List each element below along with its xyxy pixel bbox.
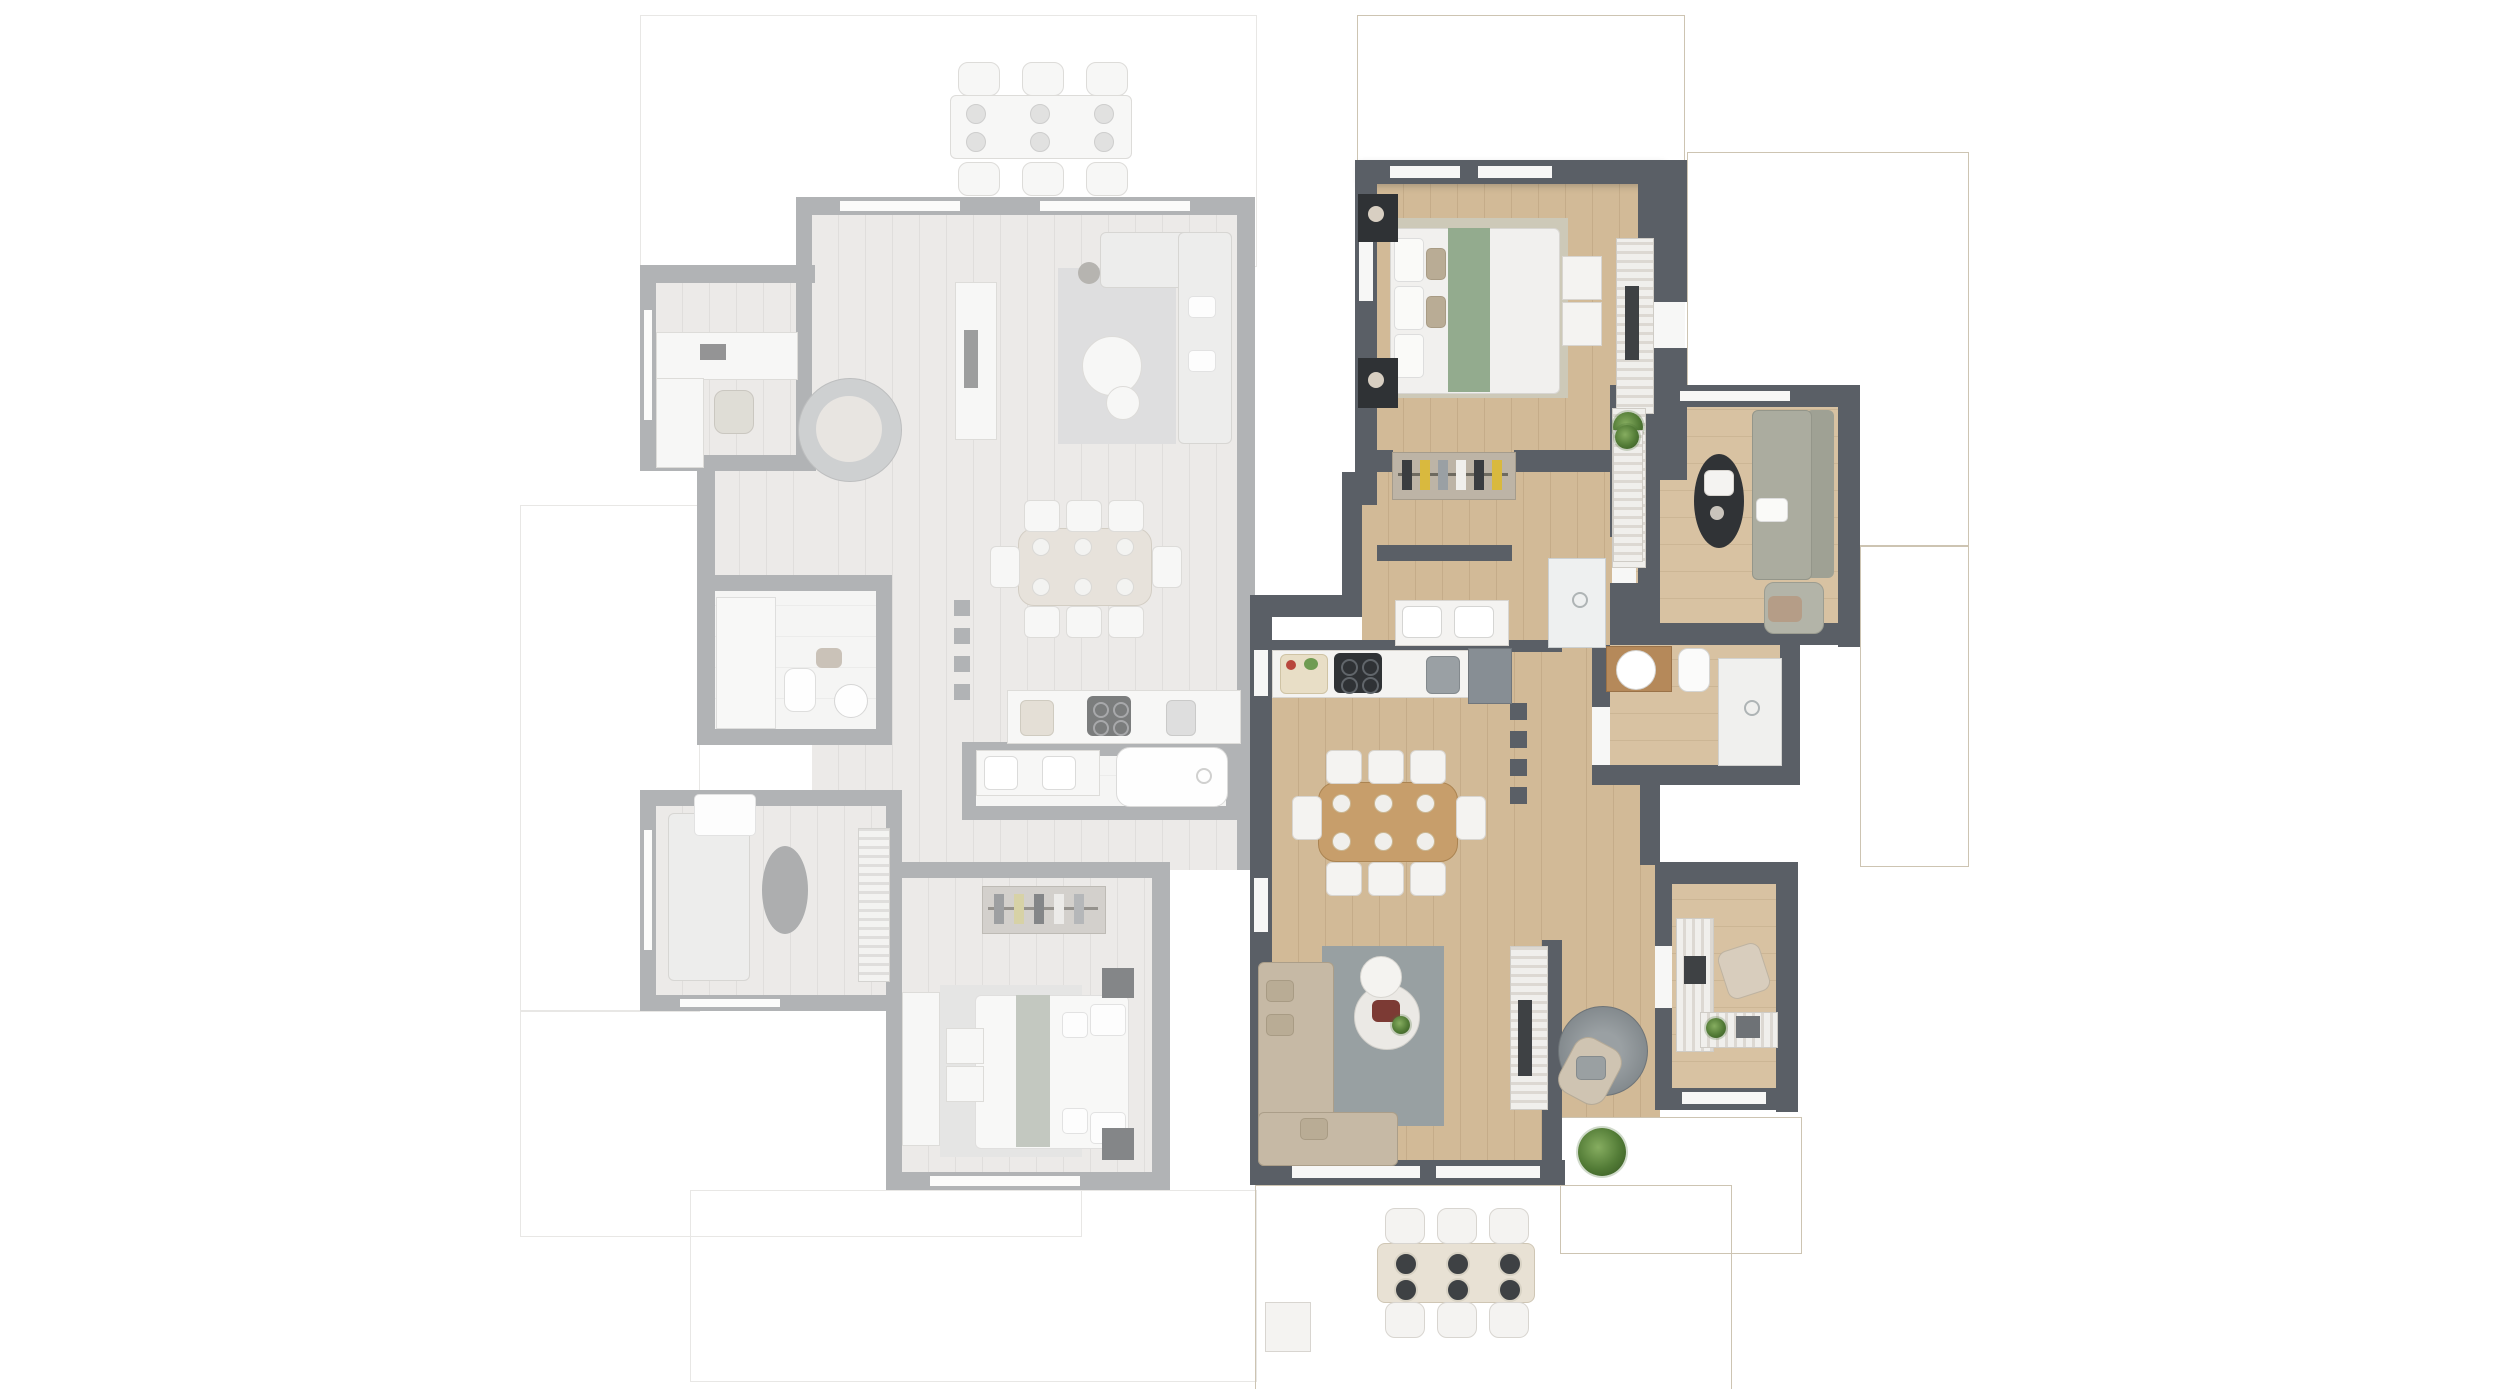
wall	[1640, 765, 1660, 865]
sliding-door	[1292, 1166, 1420, 1178]
outdoor-chair	[1437, 1208, 1477, 1244]
plate	[1332, 832, 1351, 851]
bed-runner	[1448, 228, 1490, 392]
outdoor-chair	[1489, 1208, 1529, 1244]
wall	[1342, 472, 1362, 615]
wall	[1838, 385, 1860, 647]
outdoor-chair	[1489, 1302, 1529, 1338]
outdoor-storage-box	[1265, 1302, 1311, 1352]
plate	[1374, 832, 1393, 851]
sofa-chaise	[1258, 1112, 1398, 1166]
window	[1254, 650, 1268, 696]
plate	[1416, 794, 1435, 813]
outdoor-chair	[1437, 1302, 1477, 1338]
floor-plan-canvas	[0, 0, 2500, 1389]
tv	[1625, 286, 1639, 360]
greens	[1304, 658, 1318, 670]
storage-box	[1736, 1016, 1760, 1038]
table-lamp	[1368, 206, 1384, 222]
sofa-pillow	[1756, 498, 1788, 522]
wall	[1610, 583, 1638, 645]
coffee-table-small	[1360, 956, 1402, 998]
door	[1592, 707, 1610, 765]
place-setting	[1446, 1252, 1470, 1276]
wall	[1776, 862, 1798, 1112]
wall-stub	[1510, 759, 1527, 776]
wall-stub	[1510, 703, 1527, 720]
kitchen-sink	[1426, 656, 1460, 694]
bed-pillow	[1426, 296, 1446, 328]
sofa-pillow	[1300, 1118, 1328, 1140]
sofa-pillow	[1266, 1014, 1294, 1036]
small-plant	[1706, 1018, 1726, 1038]
tomato	[1286, 660, 1296, 670]
laptop	[1684, 956, 1706, 984]
hanging-clothes	[1438, 460, 1448, 490]
oval-coffee-table	[1694, 454, 1744, 548]
place-setting	[1394, 1278, 1418, 1302]
burner	[1341, 677, 1358, 694]
dining-chair	[1368, 862, 1404, 896]
potted-plant	[1578, 1128, 1626, 1176]
dining-chair	[1410, 862, 1446, 896]
small-plant	[1392, 1016, 1410, 1034]
outdoor-chair	[1385, 1208, 1425, 1244]
shower-drain	[1744, 700, 1760, 716]
burner	[1362, 677, 1379, 694]
sofa-pillow	[1266, 980, 1294, 1002]
right-top-terrace	[1357, 15, 1685, 167]
shower-drain	[1572, 592, 1588, 608]
sofa-seat	[1752, 410, 1812, 580]
wall	[1592, 765, 1800, 785]
hanging-clothes	[1402, 460, 1412, 490]
table-lamp	[1368, 372, 1384, 388]
vase	[1710, 506, 1724, 520]
window	[1478, 166, 1552, 178]
window	[1390, 166, 1460, 178]
place-setting	[1498, 1252, 1522, 1276]
unit-right-featured	[0, 0, 2500, 1389]
wall	[1377, 545, 1512, 561]
dining-chair	[1368, 750, 1404, 784]
dining-chair	[1326, 750, 1362, 784]
dining-chair	[1456, 796, 1486, 840]
place-setting	[1394, 1252, 1418, 1276]
plate	[1416, 832, 1435, 851]
dining-chair	[1410, 750, 1446, 784]
wall-stub	[1510, 731, 1527, 748]
place-setting	[1498, 1278, 1522, 1302]
burner	[1362, 659, 1379, 676]
hanging-clothes	[1492, 460, 1502, 490]
wall	[1655, 1008, 1672, 1088]
bed-pillow	[1394, 238, 1424, 282]
wall-stub	[1510, 787, 1527, 804]
sink	[1454, 606, 1494, 638]
round-basin	[1616, 650, 1656, 690]
plate	[1332, 794, 1351, 813]
bed-bench	[1562, 256, 1602, 300]
table-tray	[1704, 470, 1734, 496]
hanging-clothes	[1420, 460, 1430, 490]
window	[1680, 391, 1790, 401]
hanging-clothes	[1456, 460, 1466, 490]
window	[1682, 1092, 1766, 1104]
sliding-door	[1436, 1166, 1540, 1178]
hanging-clothes	[1474, 460, 1484, 490]
burner	[1341, 659, 1358, 676]
sink	[1402, 606, 1442, 638]
window	[1254, 878, 1268, 932]
tall-cabinet	[1468, 648, 1512, 704]
bed-pillow	[1394, 334, 1424, 378]
door	[1655, 946, 1672, 1008]
outdoor-chair	[1385, 1302, 1425, 1338]
dining-chair	[1326, 862, 1362, 896]
bed-pillow	[1394, 286, 1424, 330]
bed-bench	[1562, 302, 1602, 346]
wall	[1357, 450, 1393, 472]
right-side-terrace	[1860, 545, 1969, 867]
place-setting	[1446, 1278, 1470, 1302]
armchair-pillow	[1576, 1056, 1606, 1080]
dining-chair	[1292, 796, 1322, 840]
console-table	[1613, 430, 1643, 562]
tv	[1518, 1000, 1532, 1076]
plate	[1374, 794, 1393, 813]
wall	[1655, 884, 1672, 946]
throw-blanket	[1768, 596, 1802, 622]
bed-pillow	[1426, 248, 1446, 280]
wall	[1780, 645, 1800, 785]
toilet	[1678, 648, 1710, 692]
small-plant	[1615, 425, 1639, 449]
